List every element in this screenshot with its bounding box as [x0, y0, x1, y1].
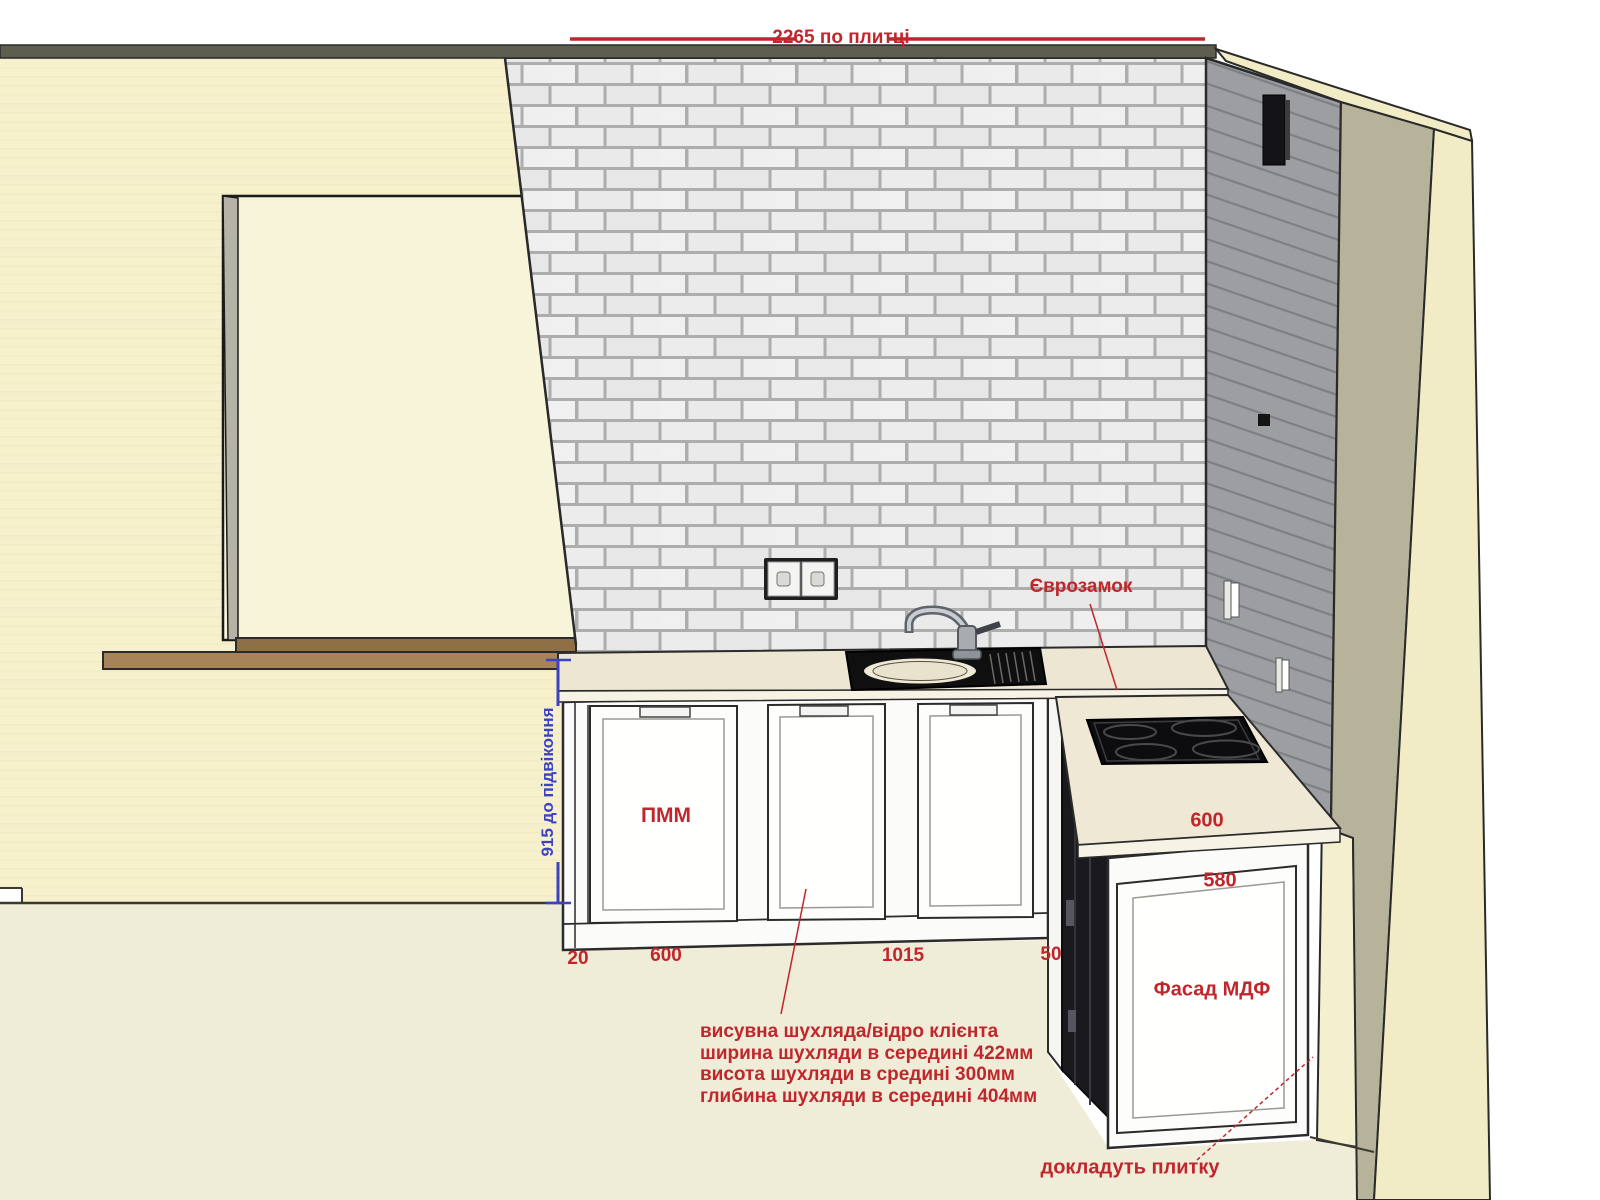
door3-panel	[930, 715, 1021, 906]
vent-duct-side	[1285, 100, 1290, 160]
dim-cabinet-width: 580	[1203, 870, 1236, 893]
side-socket-lower-body	[1276, 658, 1282, 692]
socket-outlet-left	[777, 572, 790, 586]
window-opening	[223, 196, 575, 640]
cooktop	[1087, 717, 1267, 764]
drawer-note-block: висувна шухляда/відро клієнта ширина шух…	[700, 1021, 1037, 1107]
sink-bowl-inner	[873, 662, 967, 681]
left-base-cabinets	[563, 691, 1048, 950]
door1-handle	[640, 707, 690, 717]
drawer-door	[768, 704, 885, 920]
brick-wall	[505, 58, 1206, 700]
side-socket-lower	[1276, 658, 1289, 692]
side-socket-lower-face	[1282, 660, 1289, 690]
corner-stile	[1048, 692, 1062, 1070]
facade-label: Фасад МДФ	[1154, 979, 1271, 1002]
ceiling-band	[0, 45, 1216, 58]
side-socket-upper-face	[1231, 583, 1239, 617]
dishwasher-label: ПММ	[641, 804, 691, 828]
faucet-base	[953, 650, 981, 659]
kitchen-design-drawing: 2265 по плитці Єврозамок 915 до підвікон…	[0, 0, 1600, 1200]
wall-box-mark	[1258, 414, 1270, 426]
drawing-canvas	[0, 0, 1600, 1200]
side-socket-upper-body	[1224, 581, 1231, 619]
vent-duct	[1263, 95, 1285, 165]
sill-height-dimension: 915 до підвіконня	[538, 707, 558, 856]
sink	[846, 648, 1046, 690]
drawer-note-line-4: глибина шухляди в середині 404мм	[700, 1086, 1037, 1108]
door2-handle	[800, 706, 848, 716]
side-socket-upper	[1224, 581, 1239, 619]
dim-left-gap: 20	[567, 948, 588, 970]
dim-right-gap: 50	[1040, 944, 1061, 966]
drawer-note-line-1: висувна шухляда/відро клієнта	[700, 1021, 1037, 1043]
dim-run-width: 1015	[882, 945, 924, 967]
appliance-hinge-upper	[1066, 900, 1074, 926]
sink-cabinet-door	[918, 703, 1033, 918]
socket-outlet-right	[811, 572, 824, 586]
untiled-wall-strip	[1317, 820, 1357, 1147]
door2-panel	[780, 716, 873, 908]
add-tile-label: докладуть плитку	[1041, 1157, 1220, 1180]
door3-handle	[950, 705, 997, 715]
appliance-hinge-lower	[1068, 1010, 1076, 1032]
top-dimension-label: 2265 по плитці	[772, 27, 909, 49]
drawer-note-line-2: ширина шухляди в середині 422мм	[700, 1043, 1037, 1065]
brick-wall-surface	[505, 58, 1206, 700]
wall-socket-double	[764, 558, 838, 600]
window-sill-lower-board	[103, 652, 590, 669]
dim-counter-depth: 600	[1190, 810, 1223, 833]
window-sill-upper-board	[236, 638, 583, 652]
drawer-note-line-3: висота шухляди в средині 300мм	[700, 1064, 1037, 1086]
dim-dishwasher-width: 600	[650, 945, 682, 967]
euro-lock-label: Єврозамок	[1030, 576, 1133, 598]
